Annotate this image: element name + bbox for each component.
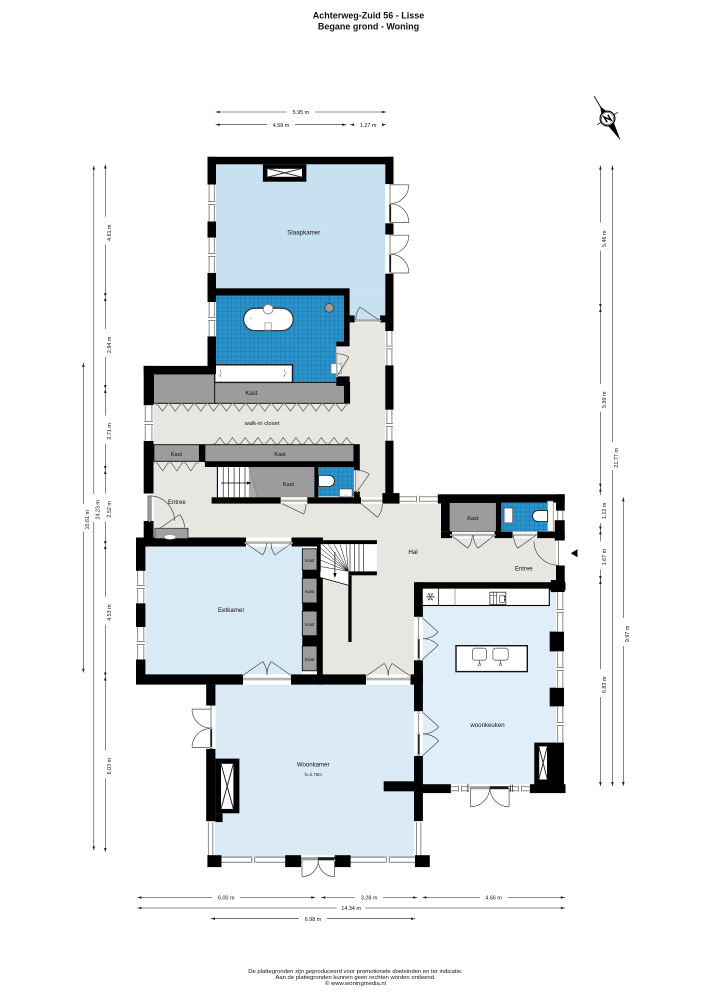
svg-text:woonkeuken: woonkeuken <box>469 722 504 729</box>
svg-text:Kast: Kast <box>305 657 315 662</box>
svg-text:2.94 m: 2.94 m <box>107 336 113 353</box>
svg-text:5.99 m: 5.99 m <box>602 391 608 408</box>
svg-text:9.97 m: 9.97 m <box>625 625 631 642</box>
svg-text:Achterweg-Zuid 56 - Lisse: Achterweg-Zuid 56 - Lisse <box>313 11 425 21</box>
svg-text:Kast: Kast <box>467 516 479 522</box>
svg-text:1.12 m: 1.12 m <box>602 502 608 519</box>
svg-text:1.27 m: 1.27 m <box>360 123 377 129</box>
svg-text:Eetkamer: Eetkamer <box>218 607 244 614</box>
svg-text:Entree: Entree <box>515 567 533 573</box>
svg-text:Kast: Kast <box>283 482 295 488</box>
svg-text:10.61 m: 10.61 m <box>85 509 91 529</box>
svg-text:© www.woningmedia.nl: © www.woningmedia.nl <box>325 980 386 987</box>
svg-text:Kast: Kast <box>171 452 183 458</box>
svg-text:4.53 m: 4.53 m <box>107 604 113 621</box>
svg-text:De plattegronden zijn geproduc: De plattegronden zijn geproduceerd voor … <box>248 969 463 975</box>
svg-text:6.83 m: 6.83 m <box>602 676 608 693</box>
svg-text:h=2.75m: h=2.75m <box>305 772 323 777</box>
svg-text:Woonkamer: Woonkamer <box>297 762 330 769</box>
svg-text:3.28 m: 3.28 m <box>361 896 378 902</box>
svg-text:6.98 m: 6.98 m <box>305 917 322 923</box>
svg-text:6.00 m: 6.00 m <box>218 896 235 902</box>
svg-text:Slaapkamer: Slaapkamer <box>287 230 320 237</box>
svg-text:24.23 m: 24.23 m <box>95 500 101 520</box>
svg-text:21.77 m: 21.77 m <box>614 448 620 468</box>
svg-text:2.52 m: 2.52 m <box>107 501 113 518</box>
svg-text:Kast: Kast <box>305 558 315 563</box>
svg-text:Kast: Kast <box>305 622 315 627</box>
svg-text:5.46 m: 5.46 m <box>602 230 608 247</box>
svg-text:Kast: Kast <box>305 589 315 594</box>
svg-text:Entree: Entree <box>168 500 186 506</box>
svg-text:Kast: Kast <box>274 452 286 458</box>
svg-text:walk-in closet: walk-in closet <box>244 421 280 427</box>
svg-text:2.71 m: 2.71 m <box>107 423 113 440</box>
svg-text:5.95 m: 5.95 m <box>293 110 310 116</box>
svg-text:1.67 m: 1.67 m <box>602 548 608 565</box>
svg-text:Begane grond - Woning: Begane grond - Woning <box>318 22 419 32</box>
svg-text:4.66 m: 4.66 m <box>485 896 502 902</box>
svg-text:Aan de plattegronden kunnen ge: Aan de plattegronden kunnen geen rechten… <box>275 975 436 981</box>
svg-text:4.58 m: 4.58 m <box>273 123 290 129</box>
svg-text:Kast: Kast <box>245 391 257 397</box>
svg-text:14.34 m: 14.34 m <box>341 906 361 912</box>
svg-text:6.03 m: 6.03 m <box>107 757 113 774</box>
svg-text:Hal: Hal <box>408 549 417 556</box>
svg-text:4.61 m: 4.61 m <box>107 224 113 241</box>
